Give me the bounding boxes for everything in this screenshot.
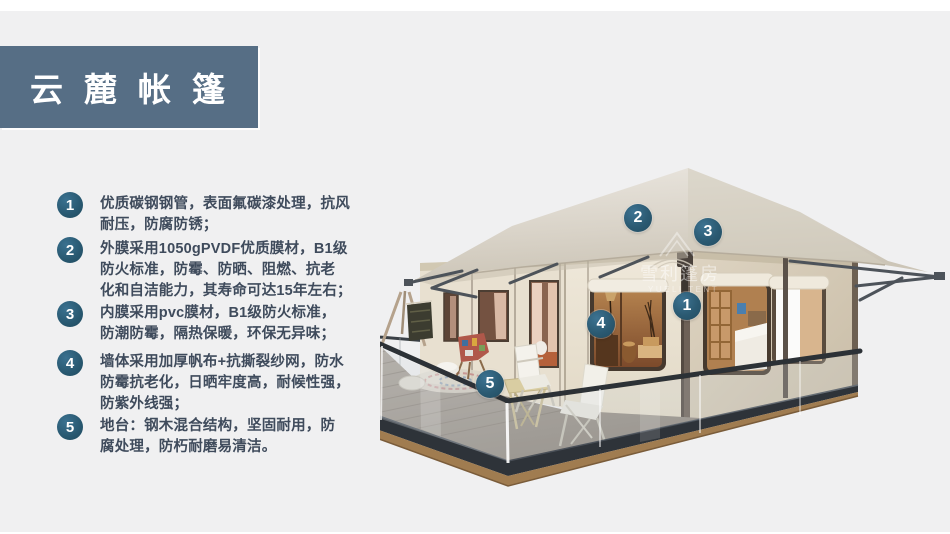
feature-text-5: 地台：钢木混合结构，坚固耐用，防 腐处理，防朽耐磨易清洁。 — [100, 416, 385, 458]
title-bar: 云麓帐篷 — [0, 46, 258, 128]
tent-marker-3-label: 3 — [704, 223, 713, 241]
side-window-panel — [772, 284, 826, 364]
feature-item-5: 5 地台：钢木混合结构，坚固耐用，防 腐处理，防朽耐磨易清洁。 — [57, 414, 387, 458]
tent-marker-1-label: 1 — [683, 297, 692, 315]
side-window-bedroom — [703, 281, 771, 375]
feature-text-4: 墙体采用加厚帆布+抗撕裂纱网，防水 防霉抗老化，日晒牢度高，耐候性强， 防紫外线… — [100, 352, 385, 415]
tent-marker-3: 3 — [694, 218, 722, 246]
feature-text-2: 外膜采用1050gPVDF优质膜材，B1级 防火标准，防霉、防晒、阻燃、抗老 化… — [100, 239, 385, 302]
feature-item-1: 1 优质碳钢钢管，表面氟碳漆处理，抗风 耐压，防腐防锈； — [57, 192, 387, 236]
tent-render: 雪利篷房 YUELI TENT — [380, 150, 950, 534]
tent-marker-5: 5 — [476, 370, 504, 398]
feature-text-3: 内膜采用pvc膜材，B1级防火标准， 防潮防霉，隔热保暖，环保无异味； — [100, 303, 385, 345]
page-title: 云麓帐篷 — [30, 63, 246, 111]
top-strip — [0, 0, 950, 11]
tent-marker-2-label: 2 — [634, 209, 643, 227]
slide: 云麓帐篷 1 优质碳钢钢管，表面氟碳漆处理，抗风 耐压，防腐防锈； 2 外膜采用… — [0, 0, 950, 534]
tent-marker-4: 4 — [587, 310, 615, 338]
tent-marker-4-label: 4 — [597, 315, 606, 333]
feature-badge-2: 2 — [57, 237, 83, 263]
feature-badge-3: 3 — [57, 301, 83, 327]
tent-marker-5-label: 5 — [486, 375, 495, 393]
feature-badge-4: 4 — [57, 350, 83, 376]
tent-marker-1: 1 — [673, 292, 701, 320]
tent-illustration: 雪利篷房 YUELI TENT 1 2 3 4 5 — [380, 150, 950, 534]
feature-badge-1: 1 — [57, 192, 83, 218]
tent-marker-2: 2 — [624, 204, 652, 232]
feature-item-4: 4 墙体采用加厚帆布+抗撕裂纱网，防水 防霉抗老化，日晒牢度高，耐候性强， 防紫… — [57, 350, 387, 415]
feature-text-1: 优质碳钢钢管，表面氟碳漆处理，抗风 耐压，防腐防锈； — [100, 194, 385, 236]
feature-badge-5: 5 — [57, 414, 83, 440]
feature-item-3: 3 内膜采用pvc膜材，B1级防火标准， 防潮防霉，隔热保暖，环保无异味； — [57, 301, 387, 345]
side-window-shade-roll-2 — [769, 276, 829, 289]
watermark-cn: 雪利篷房 — [640, 264, 720, 284]
feature-item-2: 2 外膜采用1050gPVDF优质膜材，B1级 防火标准，防霉、防晒、阻燃、抗老… — [57, 237, 387, 302]
